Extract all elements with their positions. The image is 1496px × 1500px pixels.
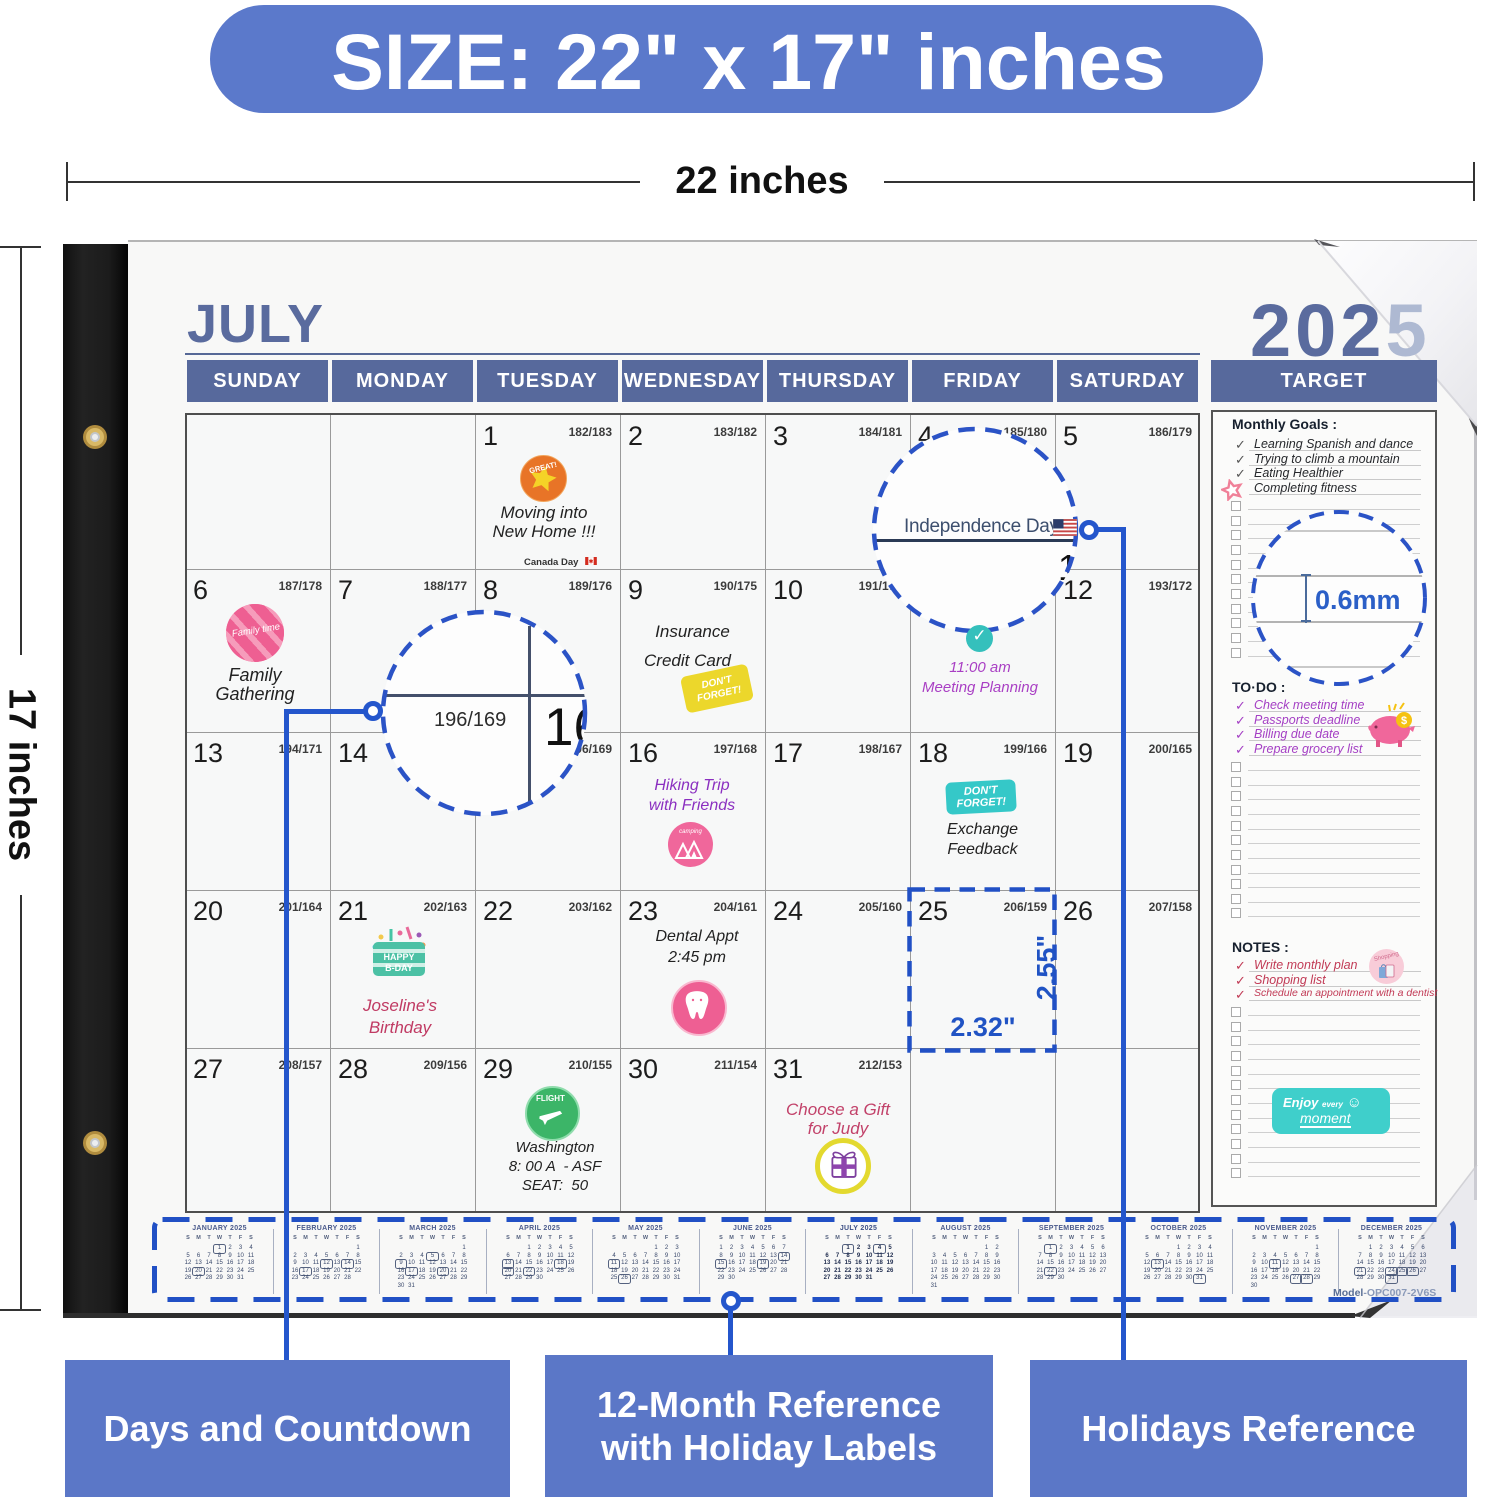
svg-text:B-DAY: B-DAY (385, 963, 413, 973)
svg-text:HAPPY: HAPPY (383, 952, 414, 962)
svg-text:$: $ (1401, 715, 1407, 727)
